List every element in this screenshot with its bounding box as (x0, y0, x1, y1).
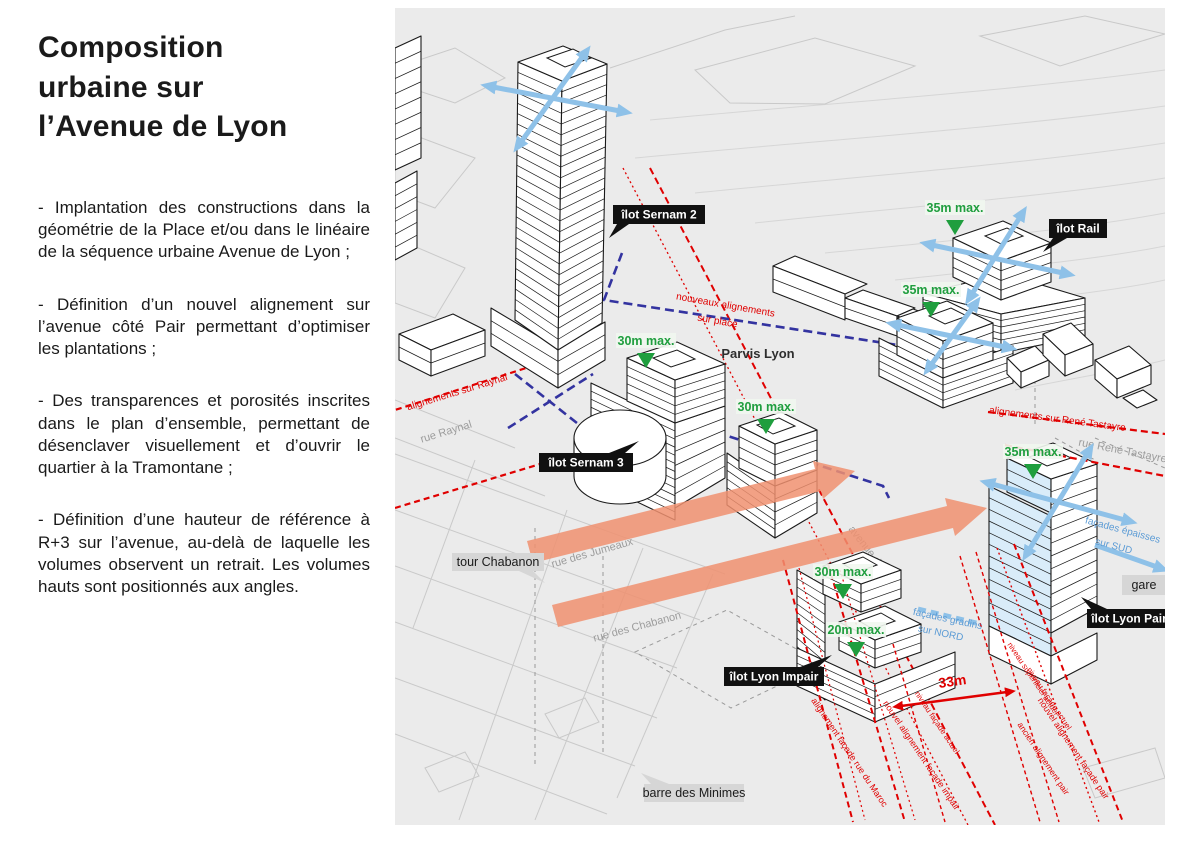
label-ilot-sernam2: îlot Sernam 2 (620, 208, 697, 222)
dim-33m-label: 33m (937, 671, 967, 691)
bullet-alignement: - Définition d’un nouvel alignement sur … (38, 294, 370, 361)
bullet-transparences: - Des transparences et porosités inscrit… (38, 390, 370, 479)
height-35m-rail-low: 35m max. (903, 283, 960, 297)
ilot-rail-buildings (879, 221, 1085, 408)
label-ilot-sernam3: îlot Sernam 3 (547, 456, 624, 470)
label-barre-des-minimes: barre des Minimes (643, 786, 746, 800)
height-30m-sernam3: 30m max. (618, 334, 675, 348)
height-30m-impair: 30m max. (815, 565, 872, 579)
bullet-implantation: - Implantation des constructions dans la… (38, 197, 370, 264)
height-35m-lyon-pair: 35m max. (1005, 445, 1062, 459)
label-ilot-lyon-pair: îlot Lyon Pair (1090, 612, 1165, 626)
height-35m-rail-top: 35m max. (927, 201, 984, 215)
height-20m-impair: 20m max. (828, 623, 885, 637)
page: Composition urbaine sur l’Avenue de Lyon… (0, 0, 1200, 850)
label-gare: gare (1131, 578, 1156, 592)
ilot-sernam3-buildings (574, 342, 725, 520)
label-nouveaux-alignements-1: nouveaux alignements (675, 291, 775, 319)
height-30m-middle: 30m max. (738, 400, 795, 414)
label-nouveaux-alignements-2: sur place (696, 313, 738, 331)
label-tour-chabanon: tour Chabanon (457, 555, 540, 569)
bullet-hauteur: - Définition d’une hauteur de référence … (38, 509, 370, 598)
label-parvis-lyon: Parvis Lyon (721, 346, 794, 361)
label-alignements-raynal: alignements sur Raynal (406, 372, 509, 413)
axonometric-plan-svg: rue Raynal rue des Jumeaux rue des Chaba… (395, 8, 1165, 825)
label-ilot-lyon-impair: îlot Lyon Impair (729, 670, 819, 684)
label-alignements-tastayre: alignements sur René Tastayre (988, 405, 1126, 434)
street-rue-raynal: rue Raynal (419, 419, 473, 446)
label-nouvel-alignement-pair: nouvel alignement façade pair (1036, 696, 1111, 801)
label-ilot-rail: îlot Rail (1055, 222, 1099, 236)
label-nouvel-alignement-impair: nouvel alignement façade impair (881, 699, 962, 812)
urban-composition-diagram: rue Raynal rue des Jumeaux rue des Chaba… (395, 8, 1165, 825)
text-column: Composition urbaine sur l’Avenue de Lyon… (38, 28, 370, 629)
page-title: Composition urbaine sur l’Avenue de Lyon (38, 28, 370, 147)
